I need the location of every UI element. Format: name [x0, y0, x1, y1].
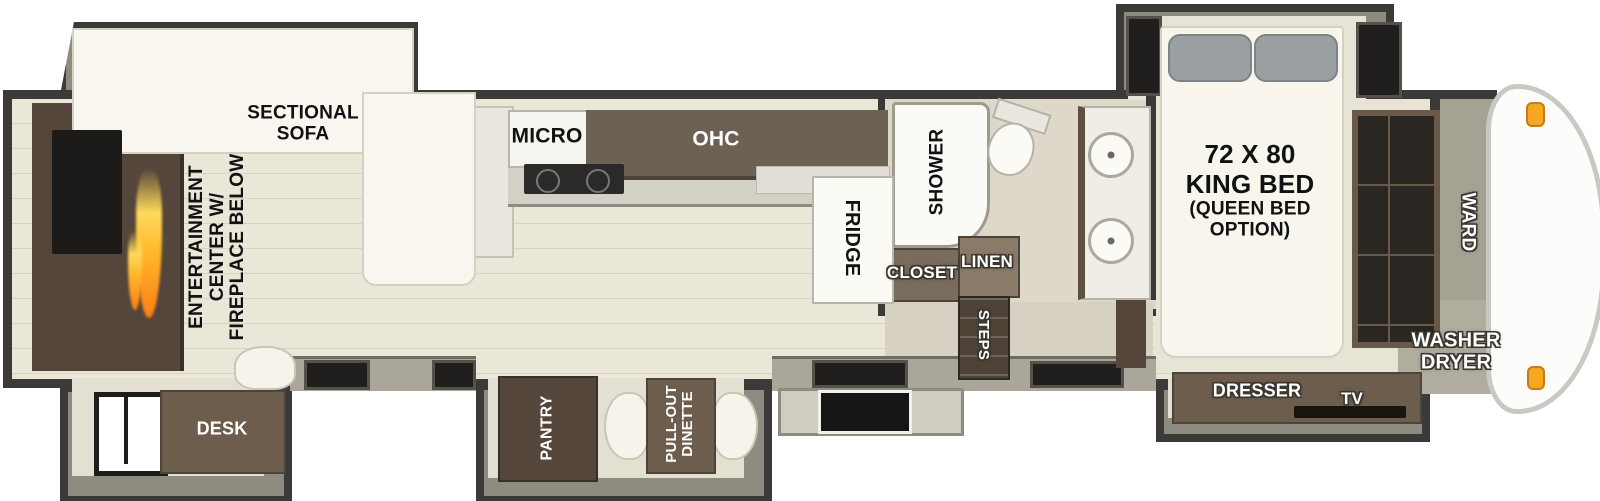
- desk-label: DESK: [197, 419, 248, 438]
- sink-drain: [1108, 152, 1115, 159]
- pantry-label: PANTRY: [538, 395, 555, 460]
- window-hall-bottom: [1030, 361, 1124, 388]
- marker-light-top: [1526, 102, 1545, 127]
- window-living-bottom: [304, 360, 370, 390]
- entertainment-center-label: ENTERTAINMENT CENTER W/ FIREPLACE BELOW: [187, 154, 249, 341]
- sink-drain: [1108, 238, 1115, 245]
- dresser-label: DRESSER: [1213, 381, 1301, 400]
- cooktop-burner-right: [586, 169, 610, 193]
- vanity-sink-bottom: [1088, 218, 1134, 264]
- kitchen-sink-inset: [812, 360, 908, 388]
- microwave-label: MICRO: [512, 126, 583, 149]
- cooktop-burner-left: [536, 169, 560, 193]
- wardrobe-label: WARD: [1457, 193, 1478, 252]
- vanity-sink-top: [1088, 132, 1134, 178]
- refrigerator-label: FRIDGE: [840, 200, 862, 277]
- front-cap: [1486, 84, 1600, 414]
- linen-label: LINEN: [961, 253, 1013, 271]
- steps-label: STEPS: [975, 310, 991, 360]
- marker-light-bottom: [1527, 366, 1545, 390]
- desk-chair: [234, 346, 296, 390]
- sectional-sofa-chaise: [362, 92, 476, 286]
- king-bed-label: 72 X 80 KING BED: [1186, 140, 1315, 200]
- dinette-chair-left: [604, 392, 650, 460]
- desk-window: [94, 392, 168, 476]
- tv-label: TV: [1341, 390, 1363, 408]
- rv-floorplan: ENTERTAINMENT CENTER W/ FIREPLACE BELOW …: [0, 0, 1600, 501]
- dinette-label: PULL-OUT DINETTE: [664, 385, 696, 462]
- pillow-left: [1168, 34, 1252, 82]
- king-bed-option-label: (QUEEN BED OPTION): [1189, 199, 1310, 240]
- window-living-bottom-2: [432, 360, 476, 390]
- tv-screen: [52, 130, 122, 254]
- mirror-closet: [1352, 110, 1440, 348]
- pillow-right: [1254, 34, 1338, 82]
- bed-slide-window-right: [1356, 22, 1402, 98]
- bed-slide-window-left: [1126, 16, 1162, 96]
- desk-window-mullion: [124, 394, 128, 464]
- sectional-sofa-label: SECTIONAL SOFA: [247, 103, 359, 144]
- washer-dryer-label: WASHER DRYER: [1412, 330, 1501, 373]
- entry-door: [818, 390, 912, 434]
- shower-label: SHOWER: [928, 129, 949, 216]
- dinette-chair-right: [712, 392, 758, 460]
- hall-cabinet: [1116, 300, 1146, 368]
- overhead-cabinet-label: OHC: [692, 129, 739, 152]
- closet-label: CLOSET: [887, 264, 957, 282]
